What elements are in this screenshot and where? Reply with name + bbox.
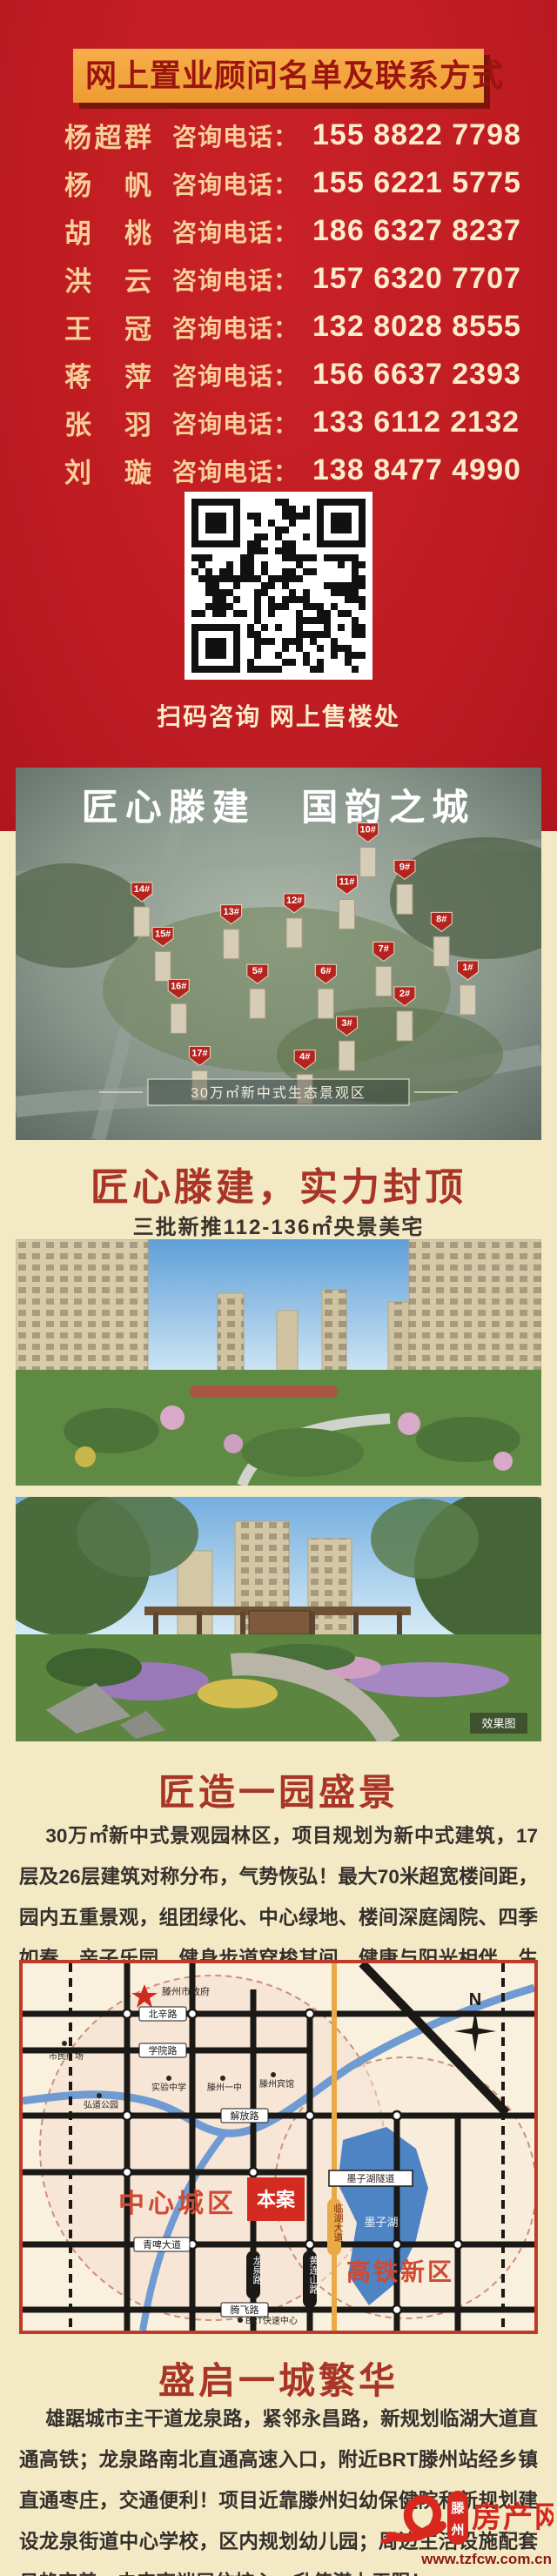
logo-city-char-2: 州 [450, 2523, 464, 2538]
tunnel-label: 墨子湖隧道 [347, 2172, 395, 2184]
svg-text:龙泉路: 龙泉路 [252, 2256, 263, 2285]
consultant-name: 刘璇 [64, 451, 151, 490]
phone-number[interactable]: 133 6112 2132 [312, 406, 520, 439]
consultant-row: 刘璇咨询电话：138 8477 4990 [64, 446, 531, 494]
phone-number[interactable]: 132 8028 8555 [312, 310, 521, 344]
building-pin: 2# [394, 987, 415, 1041]
building-pin: 15# [152, 927, 173, 981]
qr-code [185, 492, 372, 680]
pin-label: 11# [339, 877, 355, 888]
page-title: 网上置业顾问名单及联系方式 [73, 49, 484, 103]
svg-text:N: N [469, 1990, 481, 2009]
site-label: 本案 [257, 2189, 296, 2210]
consultant-name: 张羽 [64, 403, 151, 442]
consultant-row: 胡桃咨询电话：186 6327 8237 [64, 207, 531, 255]
logo-url[interactable]: www.tzfcw.com.cn [420, 2551, 552, 2567]
pin-label: 16# [171, 981, 186, 991]
phone-label: 咨询电话： [172, 453, 299, 488]
logo-city-char-1: 滕 [451, 2500, 465, 2516]
building-pin: 11# [337, 875, 358, 929]
phone-number[interactable]: 155 8822 7798 [312, 118, 521, 152]
logo-brand-text: 房产网 [472, 2501, 554, 2534]
pin-label: 15# [155, 929, 171, 939]
pin-label: 4# [299, 1052, 310, 1063]
svg-text:市民广场: 市民广场 [49, 2050, 84, 2062]
aerial-render: 1#2#3#4#5#6#7#8#9#10#11#12#13#14#15#16#1… [16, 768, 541, 1140]
location-map: 滕州市政府 墨子湖隧道 墨子湖 北辛路 学院路 解放路 青啤大道 腾飞路 [19, 1960, 538, 2334]
pin-label: 17# [191, 1048, 207, 1058]
building-pin: 3# [337, 1016, 358, 1070]
consultant-row: 张羽咨询电话：133 6112 2132 [64, 399, 531, 446]
phone-label: 咨询电话： [172, 262, 299, 297]
pin-label: 1# [462, 963, 473, 973]
svg-text:实验中学: 实验中学 [151, 2082, 186, 2093]
brand-logo[interactable]: 滕 州 房产网 www.tzfcw.com.cn [379, 2472, 554, 2572]
phone-number[interactable]: 186 6327 8237 [312, 214, 521, 248]
pin-label: 3# [341, 1018, 352, 1029]
consultant-name: 洪云 [64, 259, 151, 299]
pin-label: 6# [320, 966, 331, 976]
photo-garden-scene: 效果图 [16, 1497, 541, 1741]
consultant-row: 蒋萍咨询电话：156 6637 2393 [64, 351, 531, 399]
building-pin: 10# [358, 823, 379, 877]
svg-text:临湖大道: 临湖大道 [332, 2203, 344, 2242]
consultant-list: 杨超群咨询电话：155 8822 7798杨帆咨询电话：155 6221 577… [64, 111, 531, 494]
phone-number[interactable]: 155 6221 5775 [312, 166, 521, 200]
photo-residential-scene [16, 1239, 541, 1486]
consultant-name: 胡桃 [64, 211, 151, 251]
building-pin: 14# [131, 882, 152, 936]
phone-number[interactable]: 138 8477 4990 [312, 453, 521, 487]
svg-text:青啤大道: 青啤大道 [143, 2238, 181, 2251]
headline-garden: 匠造一园盛景 [0, 1763, 557, 1816]
region-label-left: 中心城区 [118, 2190, 237, 2218]
svg-text:滕州一中: 滕州一中 [207, 2082, 242, 2093]
pin-label: 2# [399, 989, 410, 999]
consultant-row: 杨超群咨询电话：155 8822 7798 [64, 111, 531, 159]
region-label-right: 高铁新区 [346, 2258, 454, 2285]
building-pin: 8# [431, 912, 452, 966]
qr-code-image [185, 492, 372, 680]
lake-label: 墨子湖 [364, 2216, 398, 2229]
building-pin: 7# [373, 943, 394, 996]
consultant-row: 洪云咨询电话：157 6320 7707 [64, 255, 531, 303]
consultant-row: 杨帆咨询电话：155 6221 5775 [64, 159, 531, 207]
building-pin: 16# [168, 979, 189, 1033]
svg-text:黄连山路: 黄连山路 [308, 2255, 319, 2295]
pin-label: 7# [379, 944, 389, 955]
subheadline-units: 三批新推112-136㎡央景美宅 [0, 1210, 557, 1240]
building-pin: 13# [221, 905, 242, 959]
consultant-name: 杨帆 [64, 164, 151, 203]
phone-label: 咨询电话： [172, 406, 299, 440]
building-pin: 1# [457, 961, 478, 1015]
photo-residential [16, 1239, 541, 1486]
phone-number[interactable]: 157 6320 7707 [312, 262, 521, 296]
pin-label: 13# [223, 907, 238, 917]
render-tag: 效果图 [481, 1717, 515, 1730]
headline-city: 盛启一城繁华 [0, 2351, 557, 2405]
phone-label: 咨询电话： [172, 118, 299, 153]
consultant-name: 杨超群 [64, 116, 151, 155]
poi-label: 滕州市政府 [162, 1985, 210, 1997]
svg-text:北辛路: 北辛路 [149, 2008, 178, 2020]
phone-label: 咨询电话： [172, 358, 299, 392]
building-pin: 9# [394, 860, 415, 914]
phone-number[interactable]: 156 6637 2393 [312, 358, 521, 392]
consultant-row: 王冠咨询电话：132 8028 8555 [64, 303, 531, 351]
pin-label: 9# [399, 862, 410, 872]
pin-label: 5# [252, 966, 263, 976]
consultant-name: 蒋萍 [64, 355, 151, 394]
photo-garden: 效果图 [16, 1497, 541, 1741]
pin-label: 12# [286, 896, 302, 906]
svg-text:解放路: 解放路 [231, 2110, 259, 2122]
svg-text:学院路: 学院路 [149, 2044, 178, 2056]
phone-label: 咨询电话： [172, 214, 299, 249]
svg-text:腾飞路: 腾飞路 [231, 2304, 259, 2316]
aerial-scene: 1#2#3#4#5#6#7#8#9#10#11#12#13#14#15#16#1… [16, 768, 541, 1140]
qr-caption: 扫码咨询 网上售楼处 [0, 698, 557, 733]
phone-label: 咨询电话： [172, 310, 299, 345]
building-pin: 5# [247, 964, 268, 1018]
aerial-title: 匠心滕建 国韵之城 [82, 786, 476, 828]
phone-label: 咨询电话： [172, 166, 299, 201]
svg-text:BRT快速中心: BRT快速中心 [245, 2315, 298, 2326]
svg-text:弘道公园: 弘道公园 [84, 2099, 118, 2110]
svg-text:滕州宾馆: 滕州宾馆 [259, 2078, 294, 2090]
building-pin: 6# [315, 964, 336, 1018]
pin-label: 14# [134, 884, 150, 895]
pin-label: 8# [436, 914, 446, 924]
headline-topping: 匠心滕建，实力封顶 [0, 1156, 557, 1211]
logo-e-swoosh [383, 2499, 442, 2541]
aerial-bottom-label: 30万㎡新中式生态景观区 [191, 1085, 366, 1101]
building-pin: 12# [284, 894, 305, 948]
header-section: 网上置业顾问名单及联系方式 杨超群咨询电话：155 8822 7798杨帆咨询电… [0, 0, 557, 831]
promo-page: 网上置业顾问名单及联系方式 杨超群咨询电话：155 8822 7798杨帆咨询电… [0, 0, 557, 2576]
consultant-name: 王冠 [64, 307, 151, 346]
location-map-scene: 滕州市政府 墨子湖隧道 墨子湖 北辛路 学院路 解放路 青啤大道 腾飞路 [23, 1963, 534, 2331]
